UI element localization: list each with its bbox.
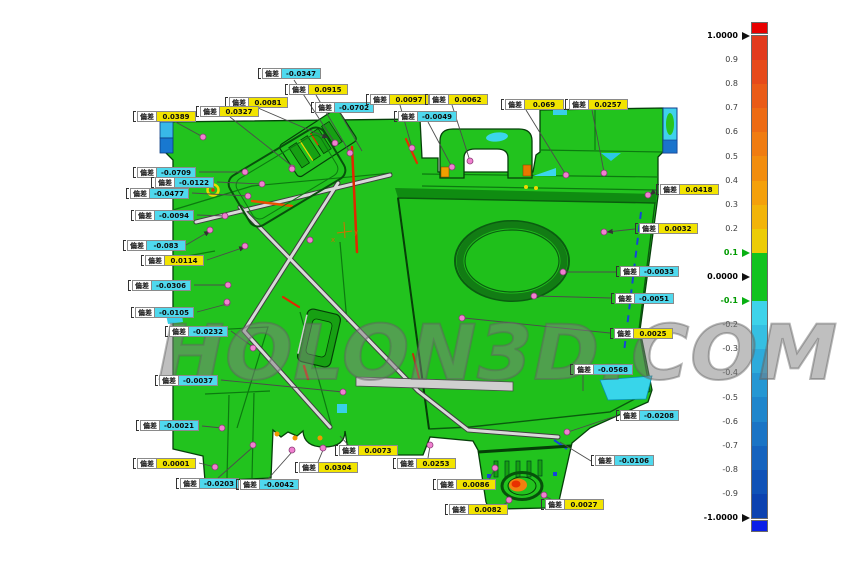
label-bracket-icon [133, 167, 136, 178]
deviation-tag: 偏差 [169, 326, 188, 337]
label-bracket-icon [123, 240, 126, 251]
measure-point-icon [307, 237, 313, 243]
deviation-tag: 偏差 [155, 177, 174, 188]
measure-point-icon [340, 389, 346, 395]
deviation-value: 0.069 [524, 99, 564, 110]
deviation-tag: 偏差 [569, 99, 588, 110]
deviation-value: 0.0257 [588, 99, 628, 110]
measure-point-icon [601, 229, 607, 235]
scale-segment [752, 229, 767, 253]
measure-point-icon [492, 465, 498, 471]
scale-segment [752, 36, 767, 60]
deviation-label[interactable]: 偏差0.0253 [393, 458, 456, 469]
label-bracket-icon [335, 445, 338, 456]
label-bracket-icon [635, 223, 638, 234]
label-bracket-icon [165, 326, 168, 337]
measure-point-icon [449, 164, 455, 170]
deviation-label[interactable]: 偏差-0.0122 [151, 177, 214, 188]
scale-segment [752, 301, 767, 325]
deviation-value: -0.0347 [281, 68, 321, 79]
measure-point-icon [320, 445, 326, 451]
deviation-tag: 偏差 [574, 364, 593, 375]
scale-segment [752, 156, 767, 180]
deviation-label[interactable]: 偏差0.0389 [133, 111, 196, 122]
scale-segment [752, 397, 767, 421]
label-bracket-icon [366, 94, 369, 105]
deviation-value: 0.0253 [416, 458, 456, 469]
measure-point-icon [259, 181, 265, 187]
deviation-label[interactable]: 偏差-0.0033 [616, 266, 679, 277]
deviation-tag: 偏差 [639, 223, 658, 234]
label-bracket-icon [141, 255, 144, 266]
deviation-tag: 偏差 [137, 458, 156, 469]
deviation-value: 0.0062 [448, 94, 488, 105]
deviation-label[interactable]: 偏差-0.0347 [258, 68, 321, 79]
label-bracket-icon [133, 458, 136, 469]
label-bracket-icon [616, 266, 619, 277]
deviation-value: -0.0037 [178, 375, 218, 386]
label-bracket-icon [133, 111, 136, 122]
scale-segment [752, 132, 767, 156]
deviation-tag: 偏差 [240, 479, 259, 490]
scale-segment [752, 277, 767, 301]
deviation-label[interactable]: 偏差0.0257 [565, 99, 628, 110]
deviation-value: 0.0327 [219, 106, 259, 117]
deviation-tag: 偏差 [315, 102, 334, 113]
scale-segment [752, 84, 767, 108]
deviation-value: -0.0477 [149, 188, 189, 199]
deviation-label[interactable]: 偏差0.0062 [425, 94, 488, 105]
measure-point-icon [427, 442, 433, 448]
measure-point-icon [200, 134, 206, 140]
measure-point-icon [250, 442, 256, 448]
measure-point-icon [467, 158, 473, 164]
deviation-tag: 偏差 [370, 94, 389, 105]
scale-segment [752, 325, 767, 349]
deviation-label[interactable]: 偏差0.0418 [656, 184, 719, 195]
deviation-value: -0.083 [146, 240, 186, 251]
deviation-tag: 偏差 [449, 504, 468, 515]
deviation-value: 0.0915 [308, 84, 348, 95]
scale-segment [752, 205, 767, 229]
deviation-value: -0.0306 [151, 280, 191, 291]
label-bracket-icon [131, 210, 134, 221]
deviation-label[interactable]: 偏差0.0304 [295, 462, 358, 473]
inspection-viewport[interactable]: y x HOLON3D.COM 1.00000.90.80.70.60.50.4… [0, 0, 850, 567]
scale-segment [752, 494, 767, 518]
deviation-label[interactable]: 偏差-0.0051 [611, 293, 674, 304]
deviation-label[interactable]: 偏差0.0915 [285, 84, 348, 95]
deviation-label[interactable]: 偏差-0.0105 [131, 307, 194, 318]
measure-point-icon [250, 345, 256, 351]
deviation-value: 0.0086 [456, 479, 496, 490]
deviation-label[interactable]: 偏差-0.083 [123, 240, 186, 251]
label-bracket-icon [393, 458, 396, 469]
deviation-label[interactable]: 偏差0.0027 [541, 499, 604, 510]
deviation-tag: 偏差 [660, 184, 679, 195]
deviation-tag: 偏差 [505, 99, 524, 110]
deviation-value: -0.0042 [259, 479, 299, 490]
label-bracket-icon [258, 68, 261, 79]
deviation-label[interactable]: 偏差0.0082 [445, 504, 508, 515]
label-bracket-icon [176, 478, 179, 489]
deviation-tag: 偏差 [620, 410, 639, 421]
label-bracket-icon [541, 499, 544, 510]
deviation-value: -0.0568 [593, 364, 633, 375]
measure-point-icon [564, 429, 570, 435]
deviation-tag: 偏差 [545, 499, 564, 510]
svg-text:y: y [354, 228, 358, 236]
label-bracket-icon [610, 328, 613, 339]
deviation-value: -0.0049 [417, 111, 457, 122]
label-bracket-icon [656, 184, 659, 195]
measure-point-icon [332, 140, 338, 146]
deviation-label[interactable]: 偏差-0.0042 [236, 479, 299, 490]
measure-point-icon [242, 243, 248, 249]
label-bracket-icon [155, 375, 158, 386]
deviation-tag: 偏差 [289, 84, 308, 95]
label-bracket-icon [311, 102, 314, 113]
deviation-label[interactable]: 偏差0.0001 [133, 458, 196, 469]
deviation-label[interactable]: 偏差0.0327 [196, 106, 259, 117]
label-bracket-icon [394, 111, 397, 122]
deviation-label[interactable]: 偏差0.0086 [433, 479, 496, 490]
deviation-tag: 偏差 [127, 240, 146, 251]
deviation-value: 0.0389 [156, 111, 196, 122]
label-bracket-icon [501, 99, 504, 110]
measure-point-icon [506, 497, 512, 503]
deviation-tag: 偏差 [137, 111, 156, 122]
deviation-value: -0.0122 [174, 177, 214, 188]
deviation-label[interactable]: 偏差0.0097 [366, 94, 429, 105]
deviation-value: 0.0027 [564, 499, 604, 510]
measure-point-icon [207, 227, 213, 233]
measure-point-icon [645, 192, 651, 198]
measure-point-icon [245, 193, 251, 199]
deviation-tag: 偏差 [200, 106, 219, 117]
deviation-value: -0.0021 [159, 420, 199, 431]
measure-point-icon [459, 315, 465, 321]
deviation-label[interactable]: 偏差-0.0106 [591, 455, 654, 466]
deviation-label[interactable]: 偏差-0.0037 [155, 375, 218, 386]
label-bracket-icon [196, 106, 199, 117]
deviation-tag: 偏差 [132, 280, 151, 291]
deviation-tag: 偏差 [180, 478, 199, 489]
measure-point-icon [601, 170, 607, 176]
measure-point-icon [347, 150, 353, 156]
label-bracket-icon [128, 280, 131, 291]
deviation-tag: 偏差 [614, 328, 633, 339]
deviation-tag: 偏差 [299, 462, 318, 473]
scale-segment [752, 470, 767, 494]
scale-segment [752, 253, 767, 277]
deviation-tag: 偏差 [339, 445, 358, 456]
deviation-value: -0.0033 [639, 266, 679, 277]
deviation-value: -0.0208 [639, 410, 679, 421]
deviation-value: 0.0073 [358, 445, 398, 456]
deviation-tag: 偏差 [615, 293, 634, 304]
deviation-value: 0.0097 [389, 94, 429, 105]
deviation-tag: 偏差 [620, 266, 639, 277]
deviation-tag: 偏差 [145, 255, 164, 266]
label-bracket-icon [433, 479, 436, 490]
measure-point-icon [560, 269, 566, 275]
deviation-label[interactable]: 偏差-0.0568 [570, 364, 633, 375]
deviation-label[interactable]: 偏差-0.0049 [394, 111, 457, 122]
measure-point-icon [225, 282, 231, 288]
deviation-value: -0.0051 [634, 293, 674, 304]
deviation-value: -0.0094 [154, 210, 194, 221]
label-bracket-icon [126, 188, 129, 199]
deviation-value: 0.0418 [679, 184, 719, 195]
deviation-tag: 偏差 [595, 455, 614, 466]
measure-point-icon [289, 447, 295, 453]
deviation-value: 0.0025 [633, 328, 673, 339]
scale-segment [752, 422, 767, 446]
deviation-label[interactable]: 偏差-0.0021 [136, 420, 199, 431]
deviation-label[interactable]: 偏差-0.0203 [176, 478, 239, 489]
deviation-tag: 偏差 [135, 210, 154, 221]
measure-point-icon [242, 169, 248, 175]
measure-point-icon [409, 145, 415, 151]
scale-segment [752, 446, 767, 470]
label-bracket-icon [591, 455, 594, 466]
label-bracket-icon [151, 177, 154, 188]
scale-segment [752, 108, 767, 132]
part-body: y x [160, 108, 677, 509]
deviation-value: -0.0105 [154, 307, 194, 318]
deviation-tag: 偏差 [262, 68, 281, 79]
scale-segment [752, 181, 767, 205]
measure-point-icon [531, 293, 537, 299]
deviation-label[interactable]: 偏差0.0114 [141, 255, 204, 266]
deviation-value: 0.0001 [156, 458, 196, 469]
deviation-value: -0.0106 [614, 455, 654, 466]
scale-bar[interactable] [752, 36, 767, 518]
deviation-label[interactable]: 偏差0.0032 [635, 223, 698, 234]
measure-point-icon [541, 492, 547, 498]
measure-point-icon [212, 464, 218, 470]
deviation-tag: 偏差 [159, 375, 178, 386]
label-bracket-icon [445, 504, 448, 515]
label-bracket-icon [236, 479, 239, 490]
label-bracket-icon [611, 293, 614, 304]
label-bracket-icon [131, 307, 134, 318]
label-bracket-icon [570, 364, 573, 375]
deviation-value: 0.0082 [468, 504, 508, 515]
deviation-tag: 偏差 [398, 111, 417, 122]
label-bracket-icon [136, 420, 139, 431]
label-bracket-icon [565, 99, 568, 110]
measure-point-icon [289, 166, 295, 172]
measure-point-icon [563, 172, 569, 178]
deviation-label[interactable]: 偏差0.0025 [610, 328, 673, 339]
measure-point-icon [219, 425, 225, 431]
svg-text:x: x [331, 236, 335, 244]
deviation-tag: 偏差 [140, 420, 159, 431]
scale-segment [752, 349, 767, 373]
deviation-value: 0.0032 [658, 223, 698, 234]
scale-segment [752, 373, 767, 397]
deviation-value: -0.0232 [188, 326, 228, 337]
deviation-tag: 偏差 [437, 479, 456, 490]
deviation-tag: 偏差 [397, 458, 416, 469]
deviation-label[interactable]: 偏差-0.0208 [616, 410, 679, 421]
deviation-label[interactable]: 偏差-0.0702 [311, 102, 374, 113]
deviation-label[interactable]: 偏差-0.0477 [126, 188, 189, 199]
deviation-value: 0.0114 [164, 255, 204, 266]
deviation-label[interactable]: 偏差-0.0306 [128, 280, 191, 291]
label-bracket-icon [425, 94, 428, 105]
label-bracket-icon [616, 410, 619, 421]
deviation-value: 0.0304 [318, 462, 358, 473]
deviation-label[interactable]: 偏差0.0073 [335, 445, 398, 456]
deviation-tag: 偏差 [130, 188, 149, 199]
deviation-label[interactable]: 偏差-0.0094 [131, 210, 194, 221]
measure-point-icon [222, 213, 228, 219]
measure-point-icon [224, 299, 230, 305]
deviation-label[interactable]: 偏差-0.0232 [165, 326, 228, 337]
scale-segment [752, 60, 767, 84]
deviation-tag: 偏差 [429, 94, 448, 105]
label-bracket-icon [295, 462, 298, 473]
deviation-value: -0.0203 [199, 478, 239, 489]
deviation-label[interactable]: 偏差0.069 [501, 99, 564, 110]
label-bracket-icon [285, 84, 288, 95]
deviation-tag: 偏差 [135, 307, 154, 318]
